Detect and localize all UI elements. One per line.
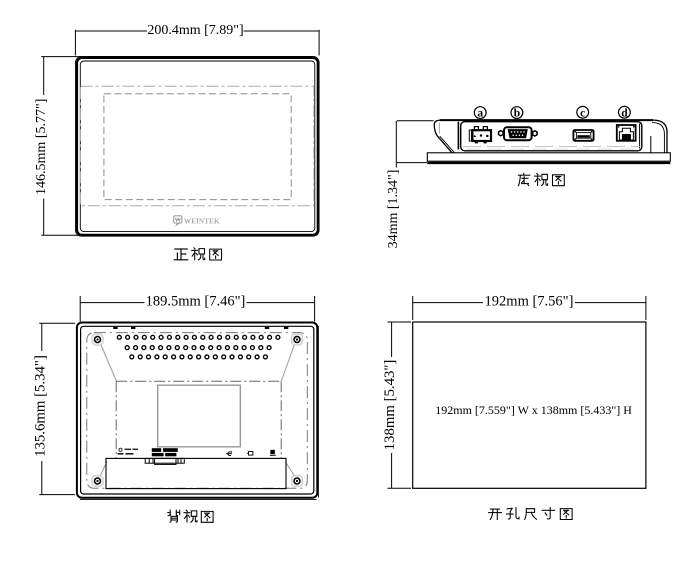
svg-text:146.5mm [5.77"]: 146.5mm [5.77"] <box>34 99 49 195</box>
svg-text:c: c <box>580 107 585 119</box>
svg-text:d: d <box>621 107 628 119</box>
svg-text:a: a <box>477 108 483 120</box>
svg-text:135.6mm [5.34"]: 135.6mm [5.34"] <box>32 355 48 457</box>
svg-text:138mm [5.43"]: 138mm [5.43"] <box>382 360 398 451</box>
svg-text:192mm [7.56"]: 192mm [7.56"] <box>485 293 574 309</box>
svg-text:b: b <box>514 108 520 120</box>
svg-text:34mm [1.34"]: 34mm [1.34"] <box>386 170 401 249</box>
svg-text:200.4mm [7.89"]: 200.4mm [7.89"] <box>147 23 243 38</box>
svg-text:192mm [7.559"] W x 138mm [5.43: 192mm [7.559"] W x 138mm [5.433"] H <box>435 403 632 417</box>
svg-text:WEINTEK: WEINTEK <box>184 218 220 226</box>
svg-text:189.5mm [7.46"]: 189.5mm [7.46"] <box>146 293 246 309</box>
